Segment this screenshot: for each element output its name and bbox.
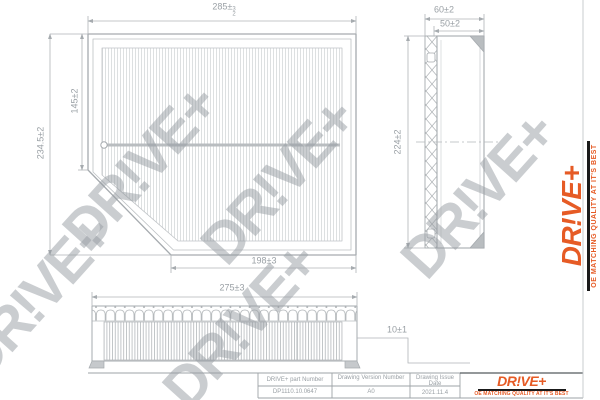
dim-bottom-edge: 198±3 xyxy=(252,257,277,266)
plan-view xyxy=(88,34,356,255)
brand-wordmark: DR!VE+ xyxy=(558,166,586,266)
dim-profile-width: 275±3 xyxy=(220,284,245,293)
dim-value: 285± xyxy=(212,2,232,12)
titleblock-version-value: A0 xyxy=(334,389,408,395)
brand-tagline: OE MATCHING QUALITY AT IT'S BEST xyxy=(474,392,568,397)
titleblock-part-header: DRIVE+ part Number xyxy=(258,377,332,383)
dim-overall-width: 285±32 xyxy=(212,3,235,18)
brand-bar xyxy=(587,141,590,291)
dim-seal-height: 10±1 xyxy=(387,326,407,335)
profile-view xyxy=(89,306,360,368)
dim-depth-total: 60±2 xyxy=(434,6,454,15)
brand-logo-vertical: DR!VE+ OE MATCHING QUALITY AT IT'S BEST xyxy=(557,97,599,335)
seam-end-circle xyxy=(101,142,107,148)
titleblock-version-header: Drawing Version Number xyxy=(334,375,408,381)
side-view xyxy=(416,36,500,248)
brand-tagline: OE MATCHING QUALITY AT IT'S BEST xyxy=(591,144,598,287)
dim-side-height: 224±2 xyxy=(394,130,403,155)
clip-top xyxy=(427,53,435,62)
corner-tab-top xyxy=(470,36,484,52)
brand-logo-titleblock: DR!VE+ OE MATCHING QUALITY AT IT'S BEST xyxy=(460,374,583,397)
drawing-sheet: DR!VE+ DR!VE+ DR!VE+ DR!VE+ DR!VE+ 285±3… xyxy=(0,0,600,400)
titleblock-part-value: DP1110.10.0647 xyxy=(258,389,332,395)
brand-wordmark: DR!VE+ xyxy=(497,374,546,388)
technical-drawing-svg xyxy=(0,0,600,400)
corner-tab-bottom xyxy=(470,232,484,248)
dim-overall-height: 234.5±2 xyxy=(37,127,46,159)
dim-depth-body: 50±2 xyxy=(440,20,460,29)
pleats xyxy=(104,322,342,360)
titleblock-date-value: 2021.11.4 xyxy=(412,390,458,396)
clip-bottom xyxy=(427,229,435,238)
titleblock-date-header: Drawing Issue Date xyxy=(412,375,458,388)
seal-bumps xyxy=(92,307,357,321)
leader-10mm xyxy=(357,338,470,363)
foot-right xyxy=(345,361,360,368)
dim-edge-height: 145±2 xyxy=(71,89,80,114)
foot-left xyxy=(89,361,104,368)
tolerance-stack: 32 xyxy=(232,8,235,18)
